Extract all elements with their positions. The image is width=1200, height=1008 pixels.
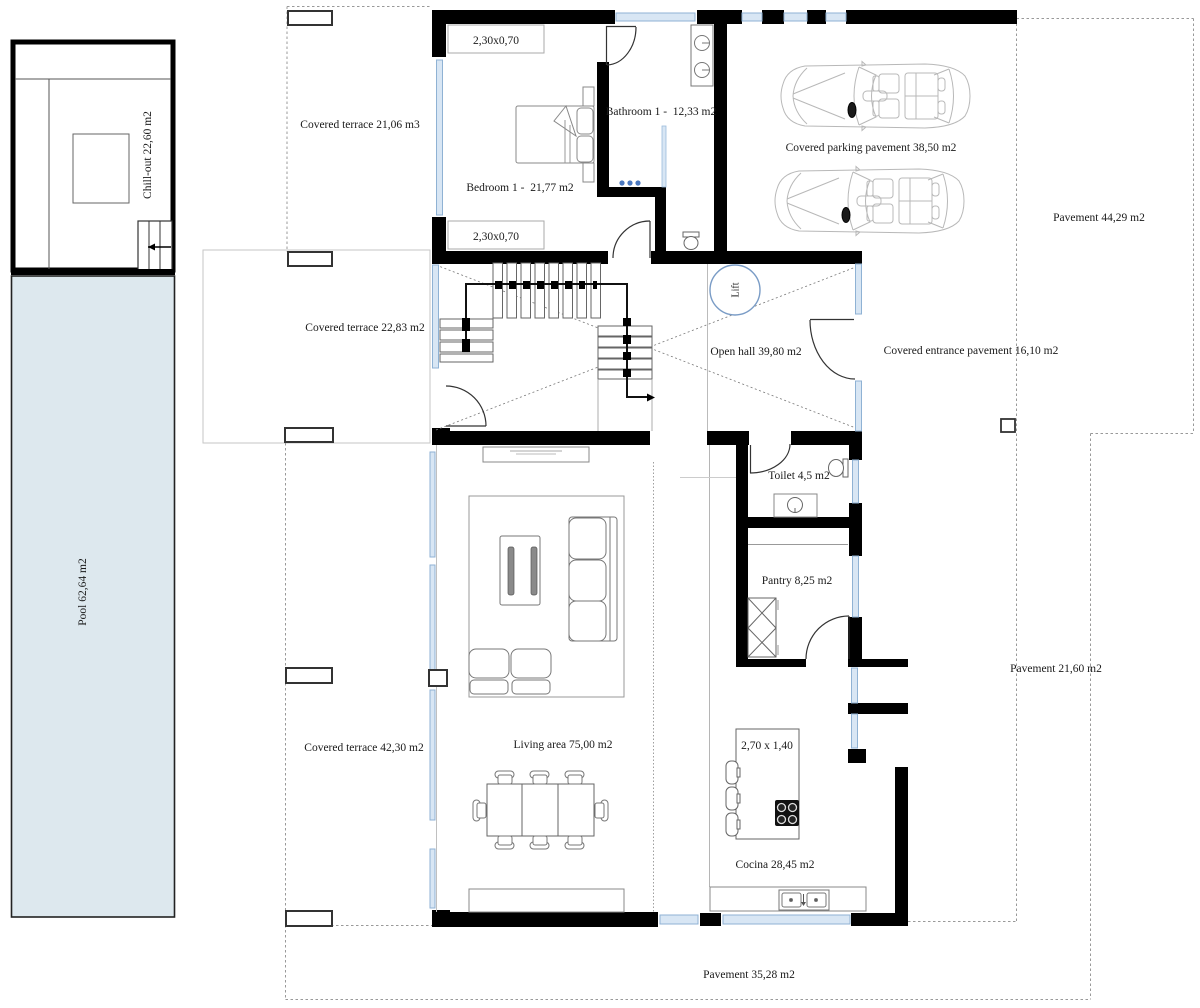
svg-text:Open hall 39,80 m2: Open hall 39,80 m2 [710,346,802,358]
svg-text:2,30x0,70: 2,30x0,70 [473,231,519,243]
svg-text:Bathroom 1 - 12,33 m2: Bathroom 1 - 12,33 m2 [606,106,717,118]
svg-text:2,30x0,70: 2,30x0,70 [473,35,519,47]
svg-text:Toilet 4,5 m2: Toilet 4,5 m2 [768,470,830,482]
svg-text:Cocina 28,45 m2: Cocina 28,45 m2 [736,859,815,871]
svg-text:Covered entrance pavement 16,1: Covered entrance pavement 16,10 m2 [884,345,1059,357]
svg-text:2,70 x 1,40: 2,70 x 1,40 [741,740,793,752]
svg-text:Living area 75,00 m2: Living area 75,00 m2 [513,739,612,751]
svg-text:Covered terrace 22,83 m2: Covered terrace 22,83 m2 [305,322,425,334]
svg-text:Covered terrace 42,30 m2: Covered terrace 42,30 m2 [304,742,424,754]
svg-text:Covered terrace 21,06 m3: Covered terrace 21,06 m3 [300,119,420,131]
svg-text:Lift: Lift [731,282,742,297]
svg-text:Pavement 44,29 m2: Pavement 44,29 m2 [1053,212,1145,224]
svg-text:Pool 62,64 m2: Pool 62,64 m2 [77,558,89,626]
svg-text:Pavement 35,28 m2: Pavement 35,28 m2 [703,969,795,981]
svg-text:Chill-out 22,60 m2: Chill-out 22,60 m2 [142,111,154,199]
svg-text:Pavement 21,60 m2: Pavement 21,60 m2 [1010,663,1102,675]
svg-text:Bedroom 1 - 21,77 m2: Bedroom 1 - 21,77 m2 [466,182,574,194]
svg-text:Covered parking pavement 38,50: Covered parking pavement 38,50 m2 [786,142,957,154]
svg-text:Pantry 8,25 m2: Pantry 8,25 m2 [762,575,833,587]
